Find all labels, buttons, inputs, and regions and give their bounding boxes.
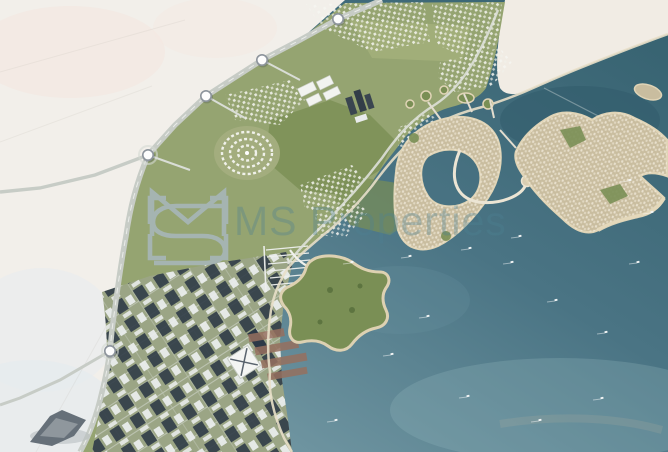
interchange-marker <box>201 91 211 101</box>
masterplan-render <box>0 0 668 452</box>
interchange-marker <box>143 150 153 160</box>
interchange-marker <box>333 14 343 24</box>
masterplan-aerial-image: MS Properties <box>0 0 668 452</box>
interchange-marker <box>105 346 115 356</box>
interchange-marker <box>257 55 267 65</box>
circular-community <box>214 126 280 180</box>
